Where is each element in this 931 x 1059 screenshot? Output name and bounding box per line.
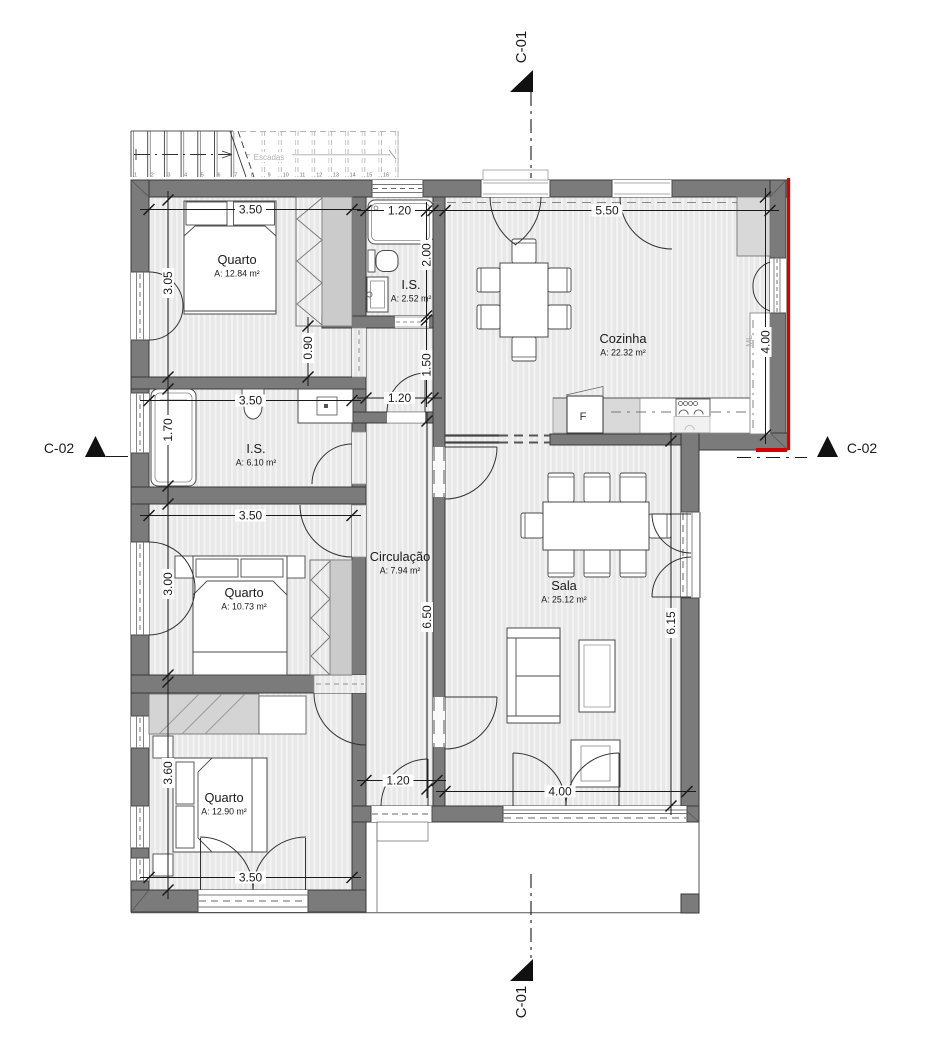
svg-text:5: 5 [201, 173, 204, 179]
svg-text:3.05: 3.05 [161, 271, 175, 295]
svg-text:Quarto: Quarto [217, 252, 256, 267]
svg-text:C-02: C-02 [847, 440, 878, 456]
svg-text:3: 3 [167, 173, 170, 179]
svg-text:2: 2 [151, 173, 154, 179]
svg-text:I.S.: I.S. [401, 277, 420, 292]
svg-text:6.50: 6.50 [420, 605, 434, 629]
svg-text:11: 11 [300, 173, 306, 179]
svg-text:Quarto: Quarto [224, 585, 263, 600]
svg-text:5.50: 5.50 [595, 204, 619, 218]
svg-text:A: 2.52 m²: A: 2.52 m² [391, 294, 432, 304]
svg-text:C-01: C-01 [513, 31, 530, 64]
svg-text:2.00: 2.00 [420, 243, 434, 267]
svg-text:4.00: 4.00 [759, 330, 773, 354]
svg-text:4: 4 [184, 173, 187, 179]
svg-text:A: 12.90 m²: A: 12.90 m² [201, 807, 247, 817]
svg-text:8: 8 [251, 173, 254, 179]
svg-text:3.60: 3.60 [161, 761, 175, 785]
svg-text:Quarto: Quarto [204, 790, 243, 805]
svg-text:7: 7 [234, 173, 237, 179]
svg-text:13: 13 [333, 173, 339, 179]
svg-text:F: F [580, 411, 587, 423]
svg-text:3.50: 3.50 [239, 509, 263, 523]
svg-text:ML: ML [744, 335, 754, 347]
svg-text:A: 7.94 m²: A: 7.94 m² [380, 566, 421, 576]
svg-text:Escadas: Escadas [254, 153, 285, 162]
svg-text:14: 14 [350, 173, 356, 179]
svg-text:A: 25.12 m²: A: 25.12 m² [541, 595, 587, 605]
svg-text:3.50: 3.50 [239, 203, 263, 217]
svg-text:1.70: 1.70 [161, 418, 175, 442]
svg-text:Circulação: Circulação [370, 549, 430, 564]
svg-text:Cozinha: Cozinha [600, 331, 648, 346]
svg-text:1.20: 1.20 [388, 391, 412, 405]
svg-text:4.00: 4.00 [548, 785, 572, 799]
svg-text:12: 12 [316, 173, 322, 179]
svg-text:3.50: 3.50 [239, 394, 263, 408]
svg-text:C-01: C-01 [513, 986, 530, 1019]
svg-text:C-02: C-02 [44, 440, 75, 456]
svg-text:A: 22.32 m²: A: 22.32 m² [600, 348, 646, 358]
svg-text:A: 6.10 m²: A: 6.10 m² [236, 458, 277, 468]
svg-text:Sala: Sala [551, 578, 577, 593]
svg-text:1.50: 1.50 [420, 353, 434, 377]
svg-text:9: 9 [268, 173, 271, 179]
svg-text:6.15: 6.15 [664, 611, 678, 635]
svg-text:0.90: 0.90 [301, 336, 315, 360]
svg-text:A: 12.84 m²: A: 12.84 m² [214, 269, 260, 279]
svg-text:10: 10 [283, 173, 289, 179]
svg-text:15: 15 [366, 173, 372, 179]
svg-text:3.50: 3.50 [239, 871, 263, 885]
svg-text:1.20: 1.20 [388, 204, 412, 218]
svg-text:16: 16 [383, 173, 389, 179]
svg-text:I.S.: I.S. [246, 441, 265, 456]
svg-text:1: 1 [134, 173, 137, 179]
svg-text:3.00: 3.00 [161, 572, 175, 596]
svg-text:A: 10.73 m²: A: 10.73 m² [221, 602, 267, 612]
svg-text:1.20: 1.20 [386, 774, 410, 788]
svg-text:6: 6 [218, 173, 221, 179]
